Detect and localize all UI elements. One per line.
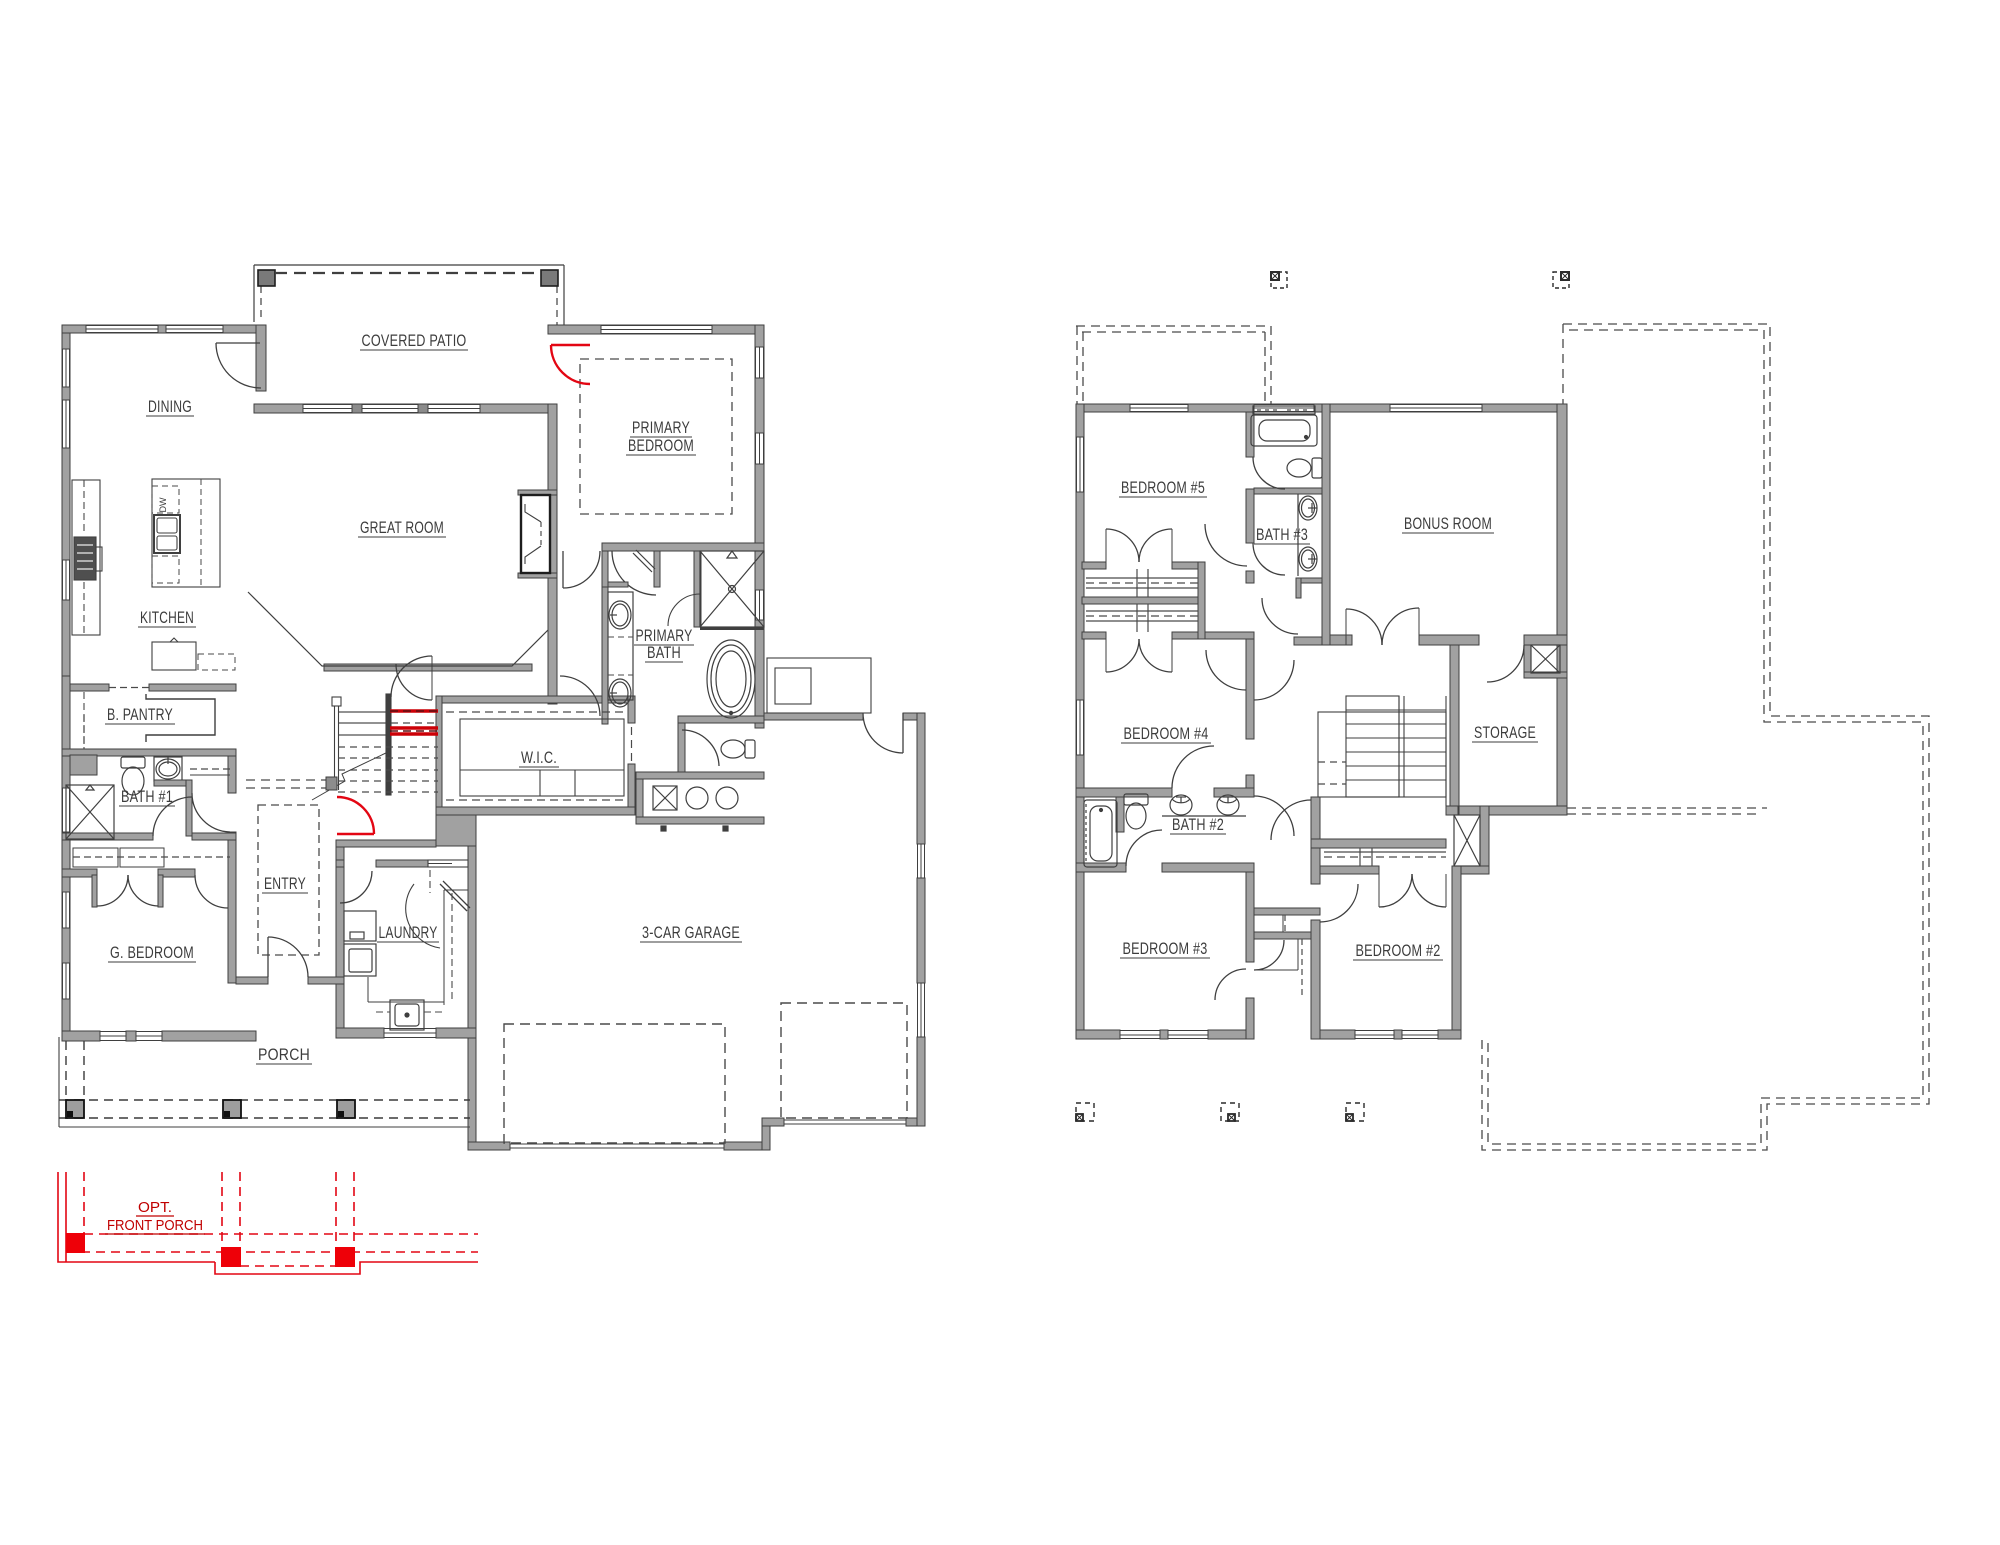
svg-text:G. BEDROOM: G. BEDROOM [110, 943, 194, 962]
svg-text:COVERED PATIO: COVERED PATIO [362, 331, 467, 350]
svg-text:STORAGE: STORAGE [1474, 723, 1536, 742]
svg-text:LAUNDRY: LAUNDRY [379, 923, 438, 942]
svg-text:BATH #2: BATH #2 [1172, 815, 1224, 834]
svg-text:GREAT ROOM: GREAT ROOM [360, 518, 444, 537]
svg-text:BONUS ROOM: BONUS ROOM [1404, 514, 1492, 533]
svg-text:BATH: BATH [647, 643, 681, 662]
svg-text:BEDROOM #3: BEDROOM #3 [1123, 939, 1208, 958]
svg-text:W.I.C.: W.I.C. [521, 748, 557, 767]
svg-text:DW: DW [158, 497, 168, 512]
svg-text:3-CAR GARAGE: 3-CAR GARAGE [642, 923, 740, 942]
svg-text:B. PANTRY: B. PANTRY [107, 705, 173, 724]
svg-text:PRIMARY: PRIMARY [632, 418, 690, 437]
svg-text:BATH #3: BATH #3 [1256, 525, 1308, 544]
svg-text:ENTRY: ENTRY [264, 874, 306, 893]
svg-text:BEDROOM: BEDROOM [628, 436, 694, 455]
svg-text:FRONT PORCH: FRONT PORCH [107, 1217, 203, 1234]
svg-text:OPT.: OPT. [138, 1199, 172, 1216]
svg-text:DINING: DINING [148, 397, 192, 416]
svg-text:PORCH: PORCH [258, 1045, 310, 1064]
svg-text:BATH #1: BATH #1 [121, 787, 173, 806]
svg-text:KITCHEN: KITCHEN [140, 608, 194, 627]
svg-text:BEDROOM #5: BEDROOM #5 [1121, 478, 1205, 497]
svg-text:BEDROOM #2: BEDROOM #2 [1356, 941, 1441, 960]
svg-text:BEDROOM #4: BEDROOM #4 [1124, 724, 1209, 743]
